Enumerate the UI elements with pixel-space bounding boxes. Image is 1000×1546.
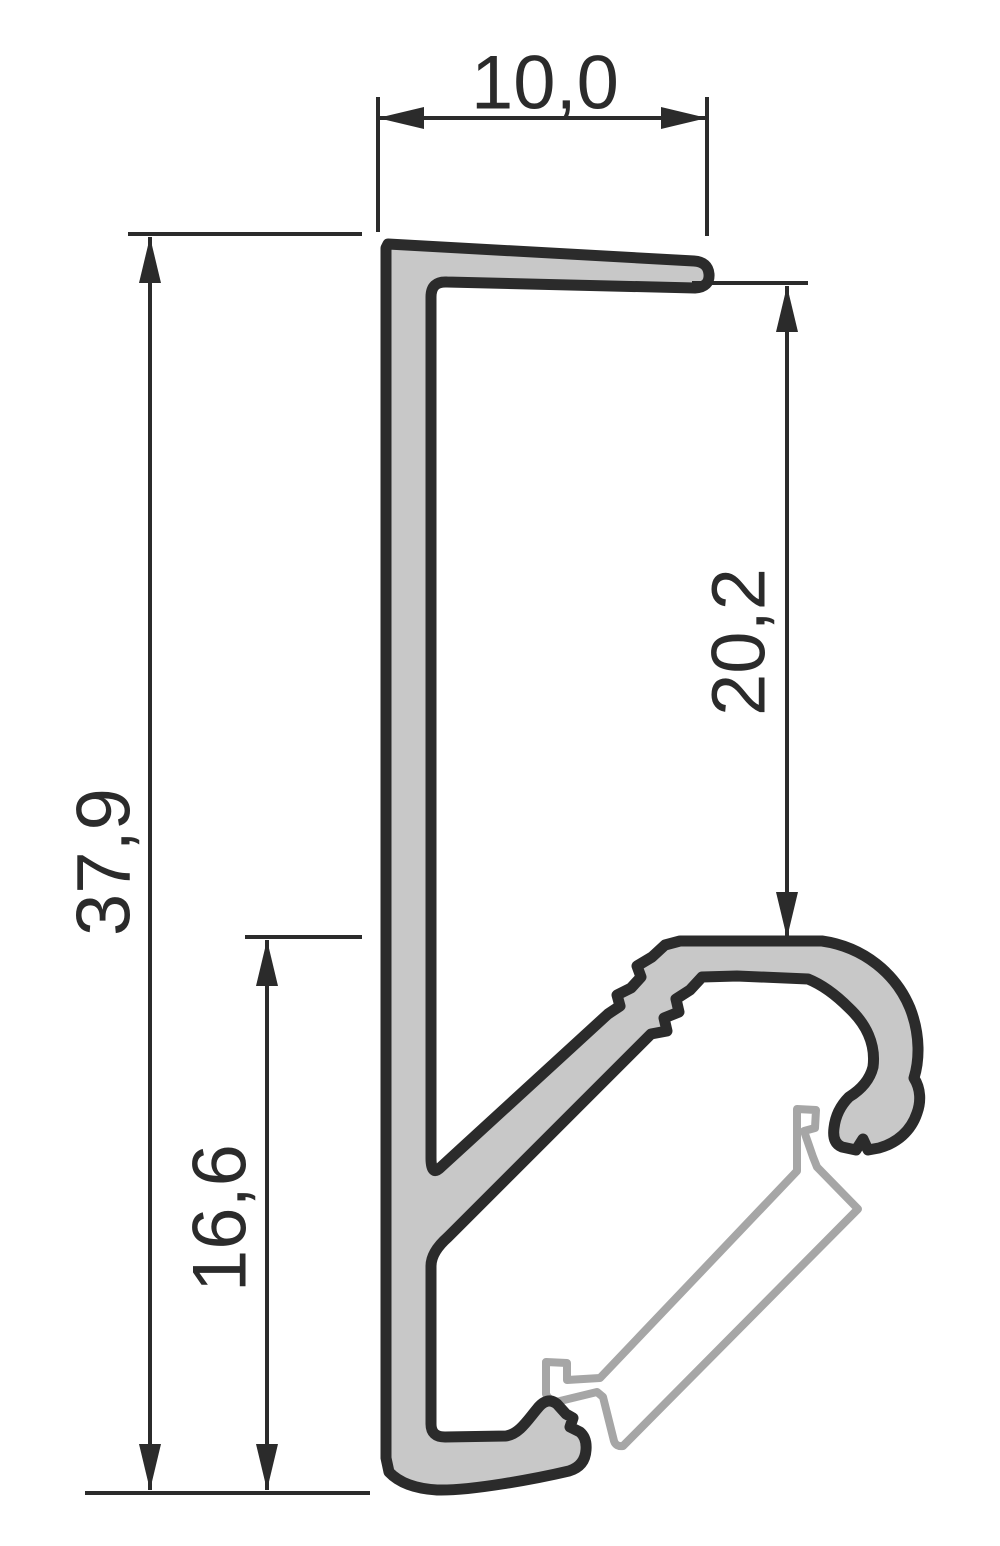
- profile-cross-section-drawing: 10,0 37,9 16,6 20,2: [0, 0, 1000, 1546]
- dimension-label-lower-height: 16,6: [178, 1144, 263, 1292]
- technical-drawing-canvas: 10,0 37,9 16,6 20,2: [0, 0, 1000, 1546]
- dimension-label-top-width: 10,0: [471, 41, 619, 126]
- dimension-label-overall-height: 37,9: [62, 788, 147, 936]
- dimension-label-channel-drop: 20,2: [697, 568, 782, 716]
